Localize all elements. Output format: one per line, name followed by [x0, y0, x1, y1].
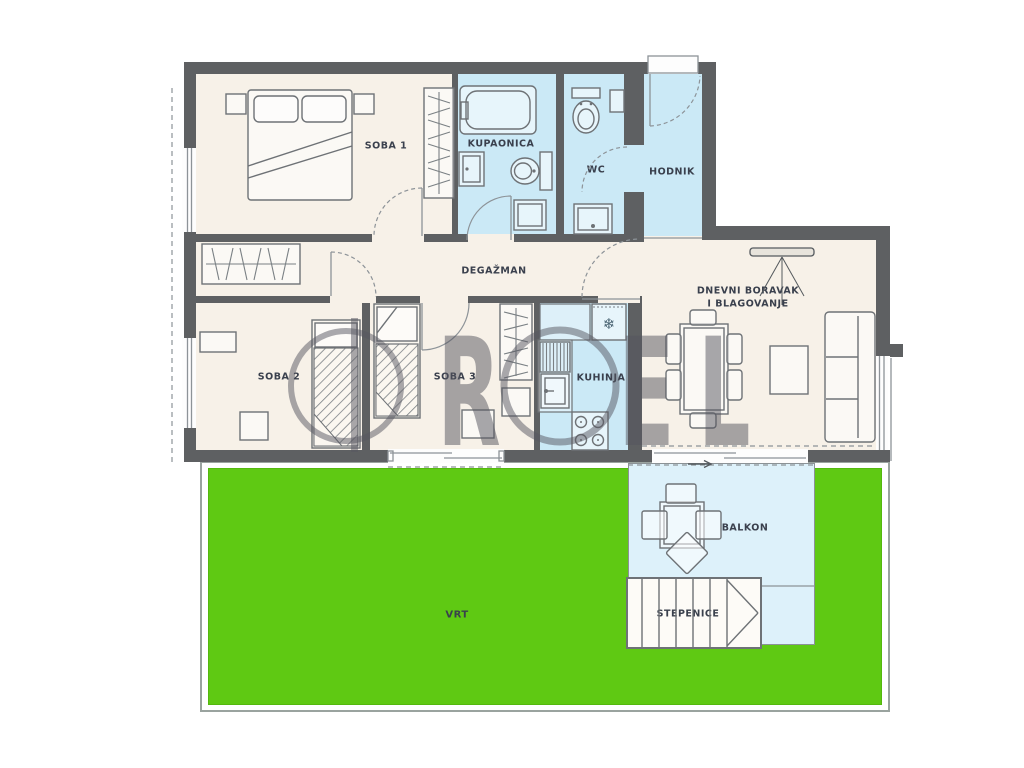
room-label-soba2: SOBA 2: [258, 372, 300, 383]
room-living: [642, 236, 878, 452]
room-label-balkon: BALKON: [722, 523, 769, 534]
door-opening-kupaonica: [468, 234, 514, 242]
room-label-hodnik: HODNIK: [649, 167, 695, 178]
window-right-living: [876, 356, 888, 450]
window-left-upper: [182, 148, 196, 232]
room-label-degazman: DEGAŽMAN: [461, 266, 526, 277]
wall-segment: [196, 296, 642, 303]
door-opening-kitchen: [598, 296, 640, 303]
wall-segment: [556, 73, 564, 240]
door-opening-soba1: [372, 234, 424, 242]
wall-segment: [702, 226, 890, 240]
wall-segment: [876, 240, 890, 356]
room-label-dnevni-line1: DNEVNI BORAVAK: [697, 286, 799, 297]
wall-segment: [808, 450, 890, 462]
room-label-kupaonica: KUPAONICA: [468, 139, 535, 150]
room-soba1: [196, 73, 454, 236]
garden-label-vrt: VRT: [445, 610, 468, 621]
wall-segment: [534, 303, 540, 450]
room-label-stepenice: STEPENICE: [657, 609, 720, 620]
sliding-door-balcony: [652, 449, 808, 463]
wall-segment: [362, 303, 370, 450]
room-hodnik: [644, 72, 702, 237]
room-label-soba3: SOBA 3: [434, 372, 476, 383]
room-label-dnevni-line2: I BLAGOVANJE: [707, 299, 788, 310]
wall-segment: [628, 298, 642, 452]
floor-plan-canvas: SOBA 1 KUPAONICA WC HODNIK DEGAŽMAN SOBA…: [0, 0, 1024, 768]
room-label-wc: WC: [587, 165, 605, 176]
room-kupaonica: [458, 73, 556, 240]
room-label-kuhinja: KUHINJA: [577, 373, 626, 384]
wall-segment: [452, 73, 458, 236]
door-opening-soba3: [420, 296, 468, 303]
wall-segment: [890, 344, 903, 357]
window-left-lower: [182, 338, 196, 428]
wall-segment: [184, 450, 390, 462]
wall-segment: [184, 62, 648, 74]
entrance-door-opening: [648, 55, 698, 74]
wall-segment: [702, 62, 716, 240]
sliding-door-garden: [388, 449, 504, 463]
room-wc: [564, 73, 624, 240]
door-opening-wc: [624, 145, 644, 192]
door-opening-soba2: [330, 296, 376, 303]
room-label-soba1: SOBA 1: [365, 141, 407, 152]
